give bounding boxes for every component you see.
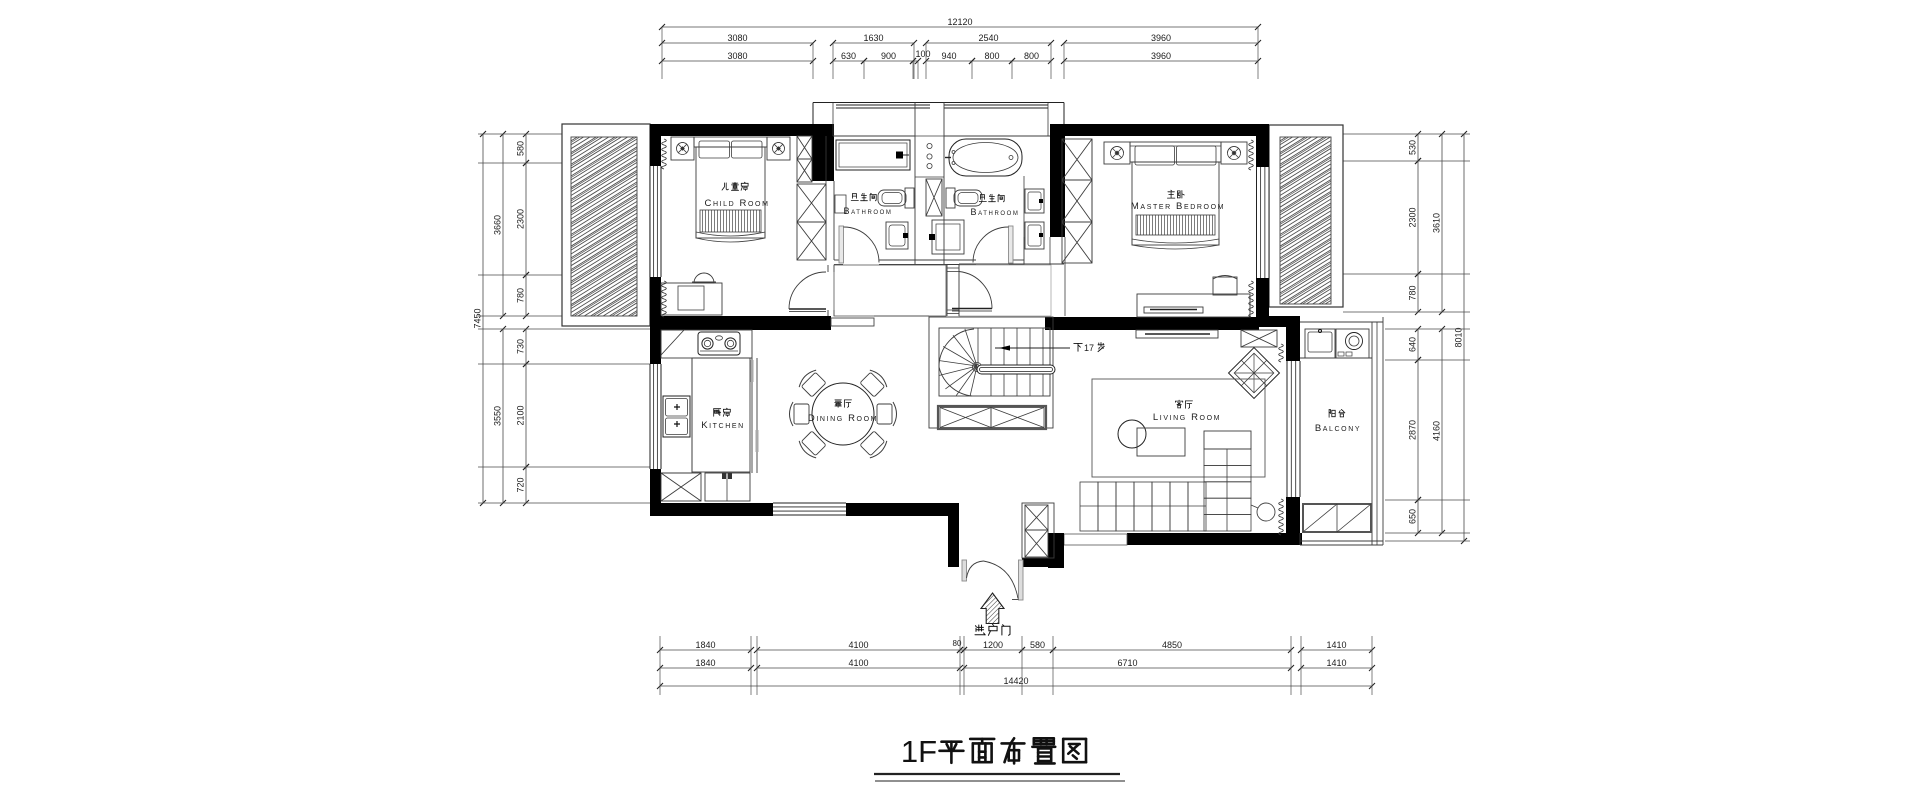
svg-text:2300: 2300 xyxy=(516,209,526,229)
svg-text:3550: 3550 xyxy=(493,406,503,426)
svg-text:7450: 7450 xyxy=(473,308,483,328)
svg-text:6710: 6710 xyxy=(1117,658,1137,668)
svg-text:3660: 3660 xyxy=(493,215,503,235)
svg-text:100: 100 xyxy=(915,49,930,59)
svg-text:940: 940 xyxy=(941,51,956,61)
svg-text:1630: 1630 xyxy=(863,33,883,43)
svg-text:2540: 2540 xyxy=(978,33,998,43)
svg-text:1410: 1410 xyxy=(1326,658,1346,668)
svg-text:Dining Room: Dining Room xyxy=(808,413,878,424)
svg-text:2100: 2100 xyxy=(516,405,526,425)
svg-text:630: 630 xyxy=(841,51,856,61)
svg-text:1F: 1F xyxy=(901,734,937,769)
svg-text:650: 650 xyxy=(1408,509,1418,524)
svg-text:580: 580 xyxy=(516,141,526,156)
svg-text:530: 530 xyxy=(1408,140,1418,155)
svg-text:80: 80 xyxy=(953,639,962,648)
svg-text:3960: 3960 xyxy=(1151,33,1171,43)
svg-text:4100: 4100 xyxy=(848,640,868,650)
svg-text:Bathroom: Bathroom xyxy=(843,206,892,216)
svg-text:8010: 8010 xyxy=(1454,327,1464,347)
svg-text:1840: 1840 xyxy=(695,658,715,668)
svg-text:4850: 4850 xyxy=(1162,640,1182,650)
svg-text:Balcony: Balcony xyxy=(1315,423,1361,434)
svg-text:3610: 3610 xyxy=(1432,213,1442,233)
svg-text:1200: 1200 xyxy=(983,640,1003,650)
svg-text:780: 780 xyxy=(1408,285,1418,300)
svg-text:14420: 14420 xyxy=(1003,676,1028,686)
svg-text:4100: 4100 xyxy=(848,658,868,668)
svg-text:3080: 3080 xyxy=(727,33,747,43)
svg-text:Kitchen: Kitchen xyxy=(701,420,745,431)
svg-text:Master Bedroom: Master Bedroom xyxy=(1131,201,1225,212)
svg-text:580: 580 xyxy=(1030,640,1045,650)
svg-text:3080: 3080 xyxy=(727,51,747,61)
svg-text:640: 640 xyxy=(1408,337,1418,352)
svg-text:1410: 1410 xyxy=(1326,640,1346,650)
svg-text:Living Room: Living Room xyxy=(1153,412,1221,423)
svg-text:780: 780 xyxy=(516,288,526,303)
svg-text:730: 730 xyxy=(516,339,526,354)
svg-text:3960: 3960 xyxy=(1151,51,1171,61)
svg-text:12120: 12120 xyxy=(947,17,972,27)
svg-text:2300: 2300 xyxy=(1408,207,1418,227)
svg-text:17: 17 xyxy=(1084,343,1094,353)
svg-text:4160: 4160 xyxy=(1432,421,1442,441)
svg-text:900: 900 xyxy=(881,51,896,61)
svg-text:Bathroom: Bathroom xyxy=(970,207,1019,217)
svg-text:800: 800 xyxy=(1024,51,1039,61)
svg-text:2870: 2870 xyxy=(1408,420,1418,440)
svg-text:1840: 1840 xyxy=(695,640,715,650)
svg-text:720: 720 xyxy=(516,477,526,492)
svg-text:800: 800 xyxy=(984,51,999,61)
svg-text:Child Room: Child Room xyxy=(704,198,769,209)
